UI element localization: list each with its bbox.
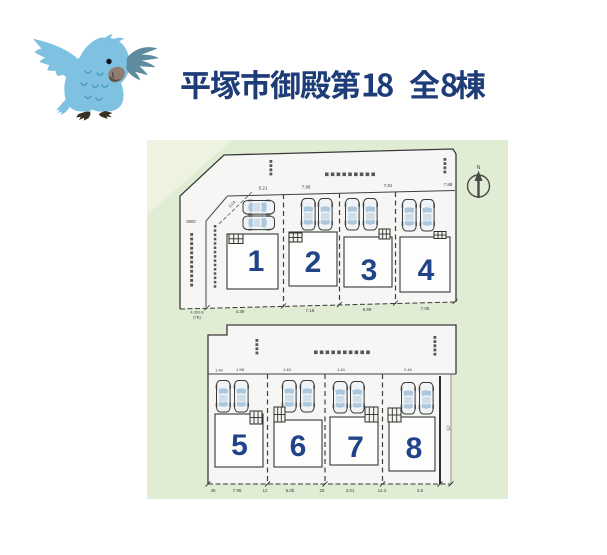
svg-text:4: 4 bbox=[418, 254, 435, 287]
svg-text:5.21: 5.21 bbox=[259, 186, 268, 191]
svg-text:6: 6 bbox=[290, 430, 307, 463]
svg-text:1: 1 bbox=[248, 245, 265, 278]
svg-text:4.36: 4.36 bbox=[236, 309, 245, 314]
svg-text:3.6: 3.6 bbox=[417, 488, 424, 493]
svg-text:1.98: 1.98 bbox=[236, 367, 245, 372]
svg-text:12: 12 bbox=[262, 488, 268, 493]
svg-text:1.40: 1.40 bbox=[283, 367, 292, 372]
svg-text:1.40: 1.40 bbox=[337, 367, 346, 372]
svg-text:45: 45 bbox=[210, 488, 216, 493]
svg-text:8: 8 bbox=[406, 432, 423, 465]
svg-text:7: 7 bbox=[347, 431, 364, 464]
svg-text:(7B): (7B) bbox=[193, 315, 201, 320]
svg-text:7.88: 7.88 bbox=[444, 182, 453, 187]
svg-text:14.2: 14.2 bbox=[378, 488, 387, 493]
svg-text:7.81: 7.81 bbox=[384, 183, 393, 188]
svg-text:5900: 5900 bbox=[186, 219, 196, 224]
svg-text:(7): (7) bbox=[446, 425, 451, 431]
svg-text:2.40: 2.40 bbox=[404, 367, 413, 372]
svg-text:3: 3 bbox=[361, 254, 378, 287]
svg-text:7.05: 7.05 bbox=[421, 306, 430, 311]
svg-text:7.96: 7.96 bbox=[233, 488, 242, 493]
svg-text:7.18: 7.18 bbox=[306, 308, 315, 313]
svg-text:3.01: 3.01 bbox=[346, 488, 355, 493]
svg-text:5: 5 bbox=[231, 429, 248, 462]
svg-text:7.98: 7.98 bbox=[302, 185, 311, 190]
svg-text:2: 2 bbox=[305, 246, 322, 279]
svg-text:5.0b: 5.0b bbox=[286, 488, 295, 493]
svg-text:6.99: 6.99 bbox=[363, 307, 372, 312]
svg-text:1.40: 1.40 bbox=[215, 368, 224, 373]
svg-text:25: 25 bbox=[319, 488, 325, 493]
svg-text:N: N bbox=[477, 165, 481, 171]
